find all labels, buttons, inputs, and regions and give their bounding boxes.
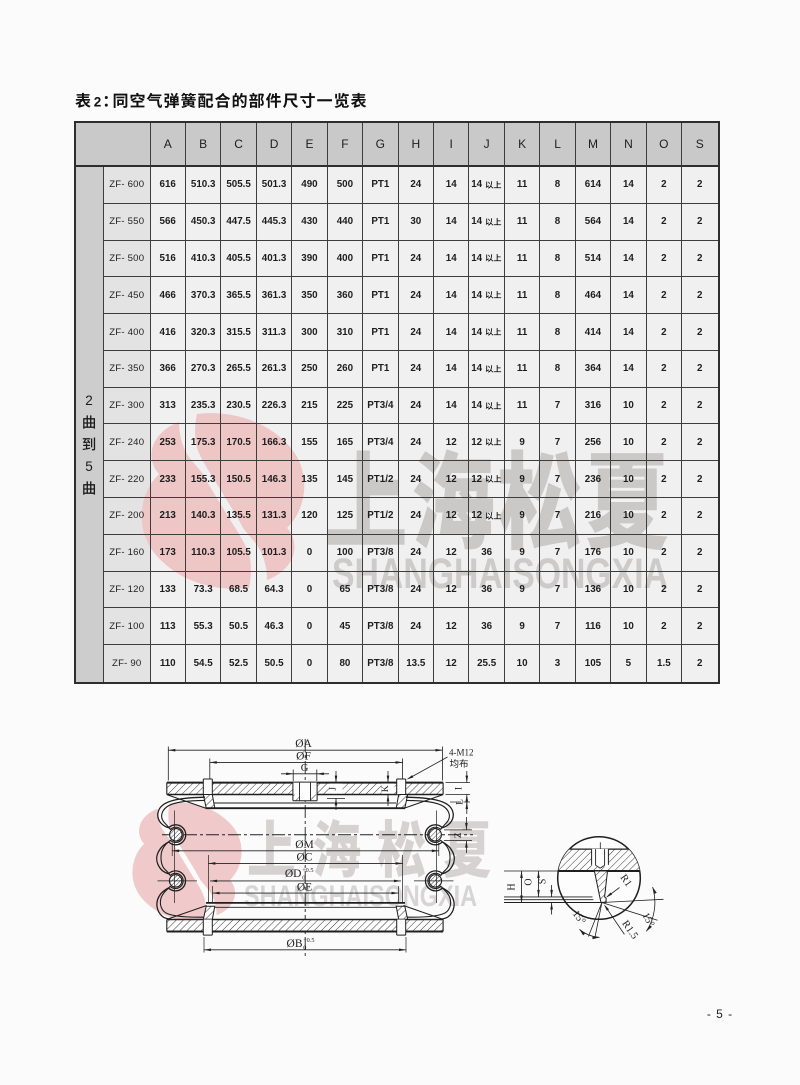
svg-text:K: K — [381, 785, 391, 792]
svg-text:ØE: ØE — [297, 881, 312, 893]
svg-text:ØB: ØB — [287, 938, 303, 950]
svg-text:0: 0 — [302, 874, 305, 881]
svg-text:ØF: ØF — [296, 751, 311, 763]
svg-text:0: 0 — [303, 945, 306, 952]
svg-text:SHANGHAISONGXIA: SHANGHAISONGXIA — [244, 880, 477, 913]
svg-text:+0.5: +0.5 — [302, 867, 313, 874]
svg-text:G: G — [301, 763, 309, 774]
svg-text:ØD: ØD — [285, 868, 302, 880]
svg-text:ØC: ØC — [297, 852, 313, 864]
svg-text:ØA: ØA — [295, 738, 312, 750]
svg-text:I: I — [454, 787, 464, 790]
svg-text:+0.5: +0.5 — [303, 937, 314, 944]
svg-text:ØM: ØM — [295, 839, 314, 851]
svg-text:4-M12: 4-M12 — [449, 748, 474, 758]
svg-text:Z: Z — [454, 832, 464, 838]
svg-text:O: O — [524, 878, 535, 885]
svg-text:R1.5: R1.5 — [619, 919, 640, 942]
svg-text:S: S — [537, 879, 548, 885]
svg-text:J: J — [329, 787, 339, 791]
svg-text:H: H — [506, 883, 517, 890]
svg-text:L: L — [455, 799, 465, 805]
